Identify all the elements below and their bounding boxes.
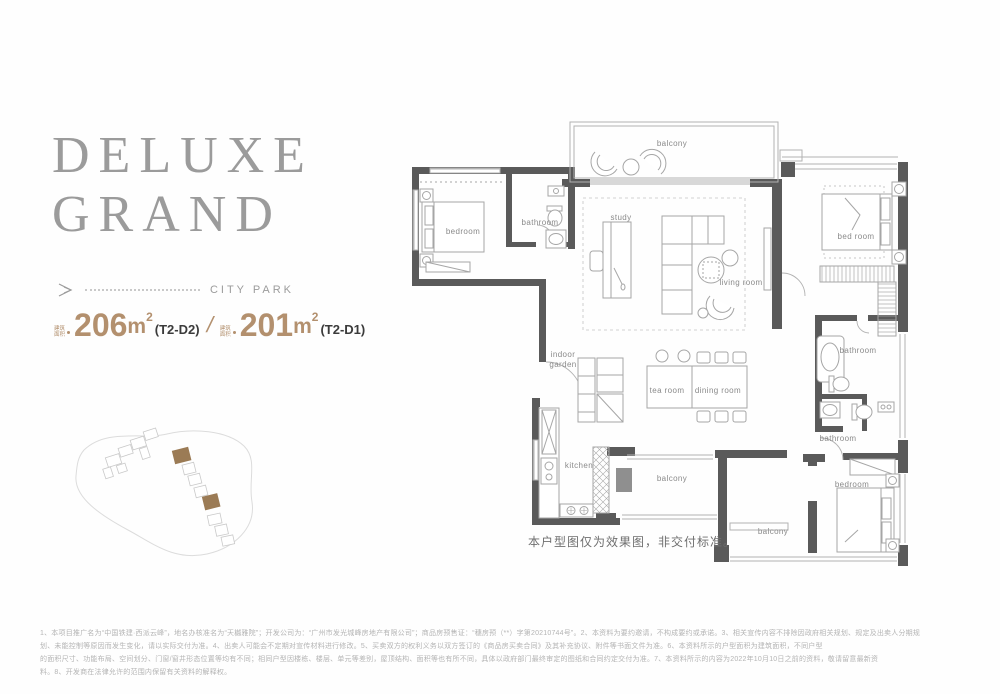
site-plan-map [62,410,277,570]
area-separator: / [203,310,216,340]
room-label-balcony-top: balcony [657,139,687,148]
dotted-divider [85,289,200,291]
room-label-bedroom-bottom: bedroom [835,480,869,489]
highlighted-building-1 [172,447,191,463]
room-label-master-bedroom: bed room [838,232,875,241]
room-label-living-room: living room [719,278,762,287]
room-label-balcony-br: balcony [758,527,788,536]
area-t2-d1: 建筑面积 201 m 2 (T2-D1) [220,310,366,340]
area-code: (T2-D2) [155,320,200,340]
highlighted-building-2 [202,494,220,510]
area-value: 201 [240,310,293,340]
area-superscript: 2 [146,311,153,323]
tagline: CITY PARK [210,284,294,296]
area-icon-text-bottom: 面积 [220,332,231,338]
area-info: 建筑面积 206 m 2 (T2-D2) / 建筑面积 201 m 2 (T2-… [54,310,365,340]
room-label-dining-room: dining room [695,386,741,395]
footnote-line: 1、本项目推广名为“中国铁建·西派云峰”，地名办核准名为“天樾雅院”；开发公司为… [40,627,964,640]
area-unit: m [127,314,146,340]
balcony-chairs-icon [591,149,666,175]
page-title: DELUXEGRAND [52,126,314,244]
building-cluster-c [207,511,234,548]
cabinet-icon [578,358,623,422]
area-t2-d2: 建筑面积 206 m 2 (T2-D2) [54,310,200,340]
area-icon-text-bottom: 面积 [54,332,65,338]
area-superscript: 2 [312,311,319,323]
title-line-1: DELUXE [52,127,314,184]
toilet-icon [546,186,566,248]
footnote-line: 料。8、开发商在法律允许的范围内保留有关资料的解释权。 [40,666,964,679]
room-label-bathroom-right: bathroom [840,346,877,355]
brochure-page: DELUXEGRAND CITY PARK 建筑面积 206 m 2 (T2-D… [0,0,1000,694]
area-unit-icon: 建筑面积 [54,326,72,338]
dot-icon [67,331,70,334]
legal-footnotes: 1、本项目推广名为“中国铁建·西派云峰”，地名办核准名为“天樾雅院”；开发公司为… [40,627,964,679]
washer-icon [616,468,632,492]
footnote-line: 的面积尺寸、功能布局、空间划分、门窗/窗井形态位置等均有不同；相同户型因楼栋、楼… [40,653,964,666]
room-label-bedroom-topleft: bedroom [446,227,480,236]
arrow-icon [56,282,78,298]
room-label-garden: garden [549,360,576,369]
furniture [420,149,906,552]
area-value: 206 [74,310,127,340]
toilet-icon [820,402,894,420]
dot-icon [233,331,236,334]
room-label-indoor: indoor [551,350,576,359]
area-unit-icon: 建筑面积 [220,326,238,338]
footnote-line: 划、未能控制等原因而发生变化，请以实际交付为准。4、出卖人可能会不定期对宣传材料… [40,640,964,653]
room-label-bathroom-topleft: bathroom [522,218,559,227]
master-bed-icon [822,182,906,264]
tagline-row: CITY PARK [56,282,294,298]
bed-icon [837,459,899,552]
area-unit: m [293,314,312,340]
floorplan-disclaimer: 本户型图仅为效果图，非交付标准。 [528,534,736,549]
room-label-study: study [610,213,631,222]
desk-icon [590,222,631,298]
room-label-balcony-bottom: balcony [657,474,687,483]
area-code: (T2-D1) [320,320,365,340]
floorplan-drawing: balcony bedroom bathroom study living ro… [400,110,930,570]
room-label-kitchen: kitchen [565,461,593,470]
building-cluster-b [182,461,208,499]
title-line-2: GRAND [52,186,282,243]
room-label-bathroom-right2: bathroom [820,434,857,443]
room-label-tea-room: tea room [650,386,685,395]
sofa-icon [662,216,771,320]
